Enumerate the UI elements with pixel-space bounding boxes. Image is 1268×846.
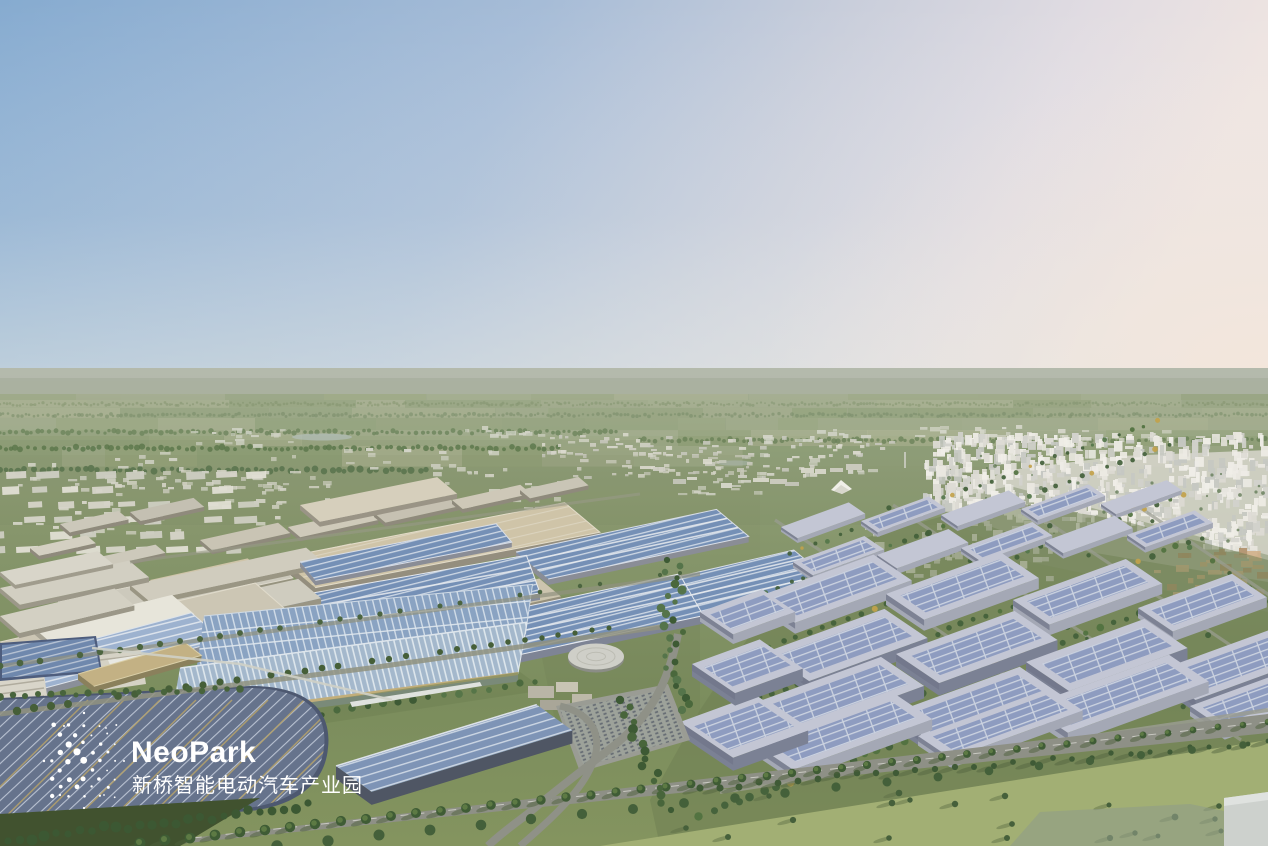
svg-text:NeoPark: NeoPark	[131, 736, 256, 769]
svg-text:新桥智能电动汽车产业园: 新桥智能电动汽车产业园	[132, 774, 363, 797]
